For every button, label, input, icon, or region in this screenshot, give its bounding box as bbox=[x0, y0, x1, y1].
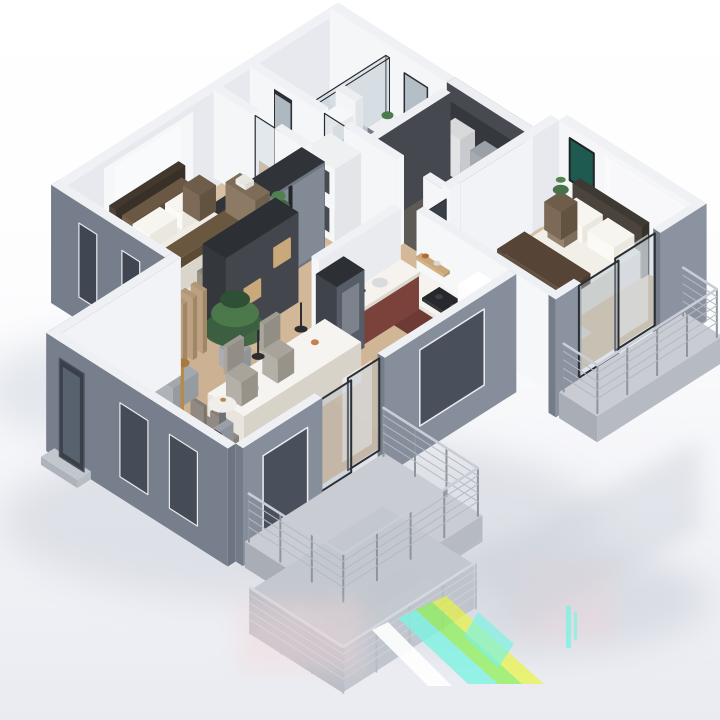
master-nightstand-plant-top bbox=[556, 177, 566, 183]
floorplan-viewport bbox=[0, 0, 720, 720]
living-slider-pane-2 bbox=[320, 380, 351, 492]
floorplan-canvas bbox=[0, 0, 720, 720]
bedroom1-exterior-window-1 bbox=[79, 223, 97, 308]
kitchen-sink bbox=[372, 278, 388, 288]
pendant-lamp-2 bbox=[252, 353, 265, 360]
entry-door-glass bbox=[63, 367, 80, 464]
floorplan-render bbox=[0, 3, 720, 693]
pendant-lamp-1 bbox=[295, 326, 308, 333]
master-nightstand-plant bbox=[553, 185, 569, 195]
vanity-plant bbox=[382, 111, 394, 119]
living-slider-pane-1 bbox=[348, 358, 379, 470]
glitch-pink-left bbox=[238, 600, 362, 672]
pendant-2-cord bbox=[257, 330, 259, 357]
island-vase bbox=[311, 339, 319, 345]
glitch-cyan-dash-1 bbox=[566, 606, 571, 648]
pendant-1-cord bbox=[300, 302, 302, 329]
kitchen-jar-2 bbox=[434, 261, 441, 266]
cooktop-burner-1 bbox=[435, 294, 443, 299]
master-nightstand bbox=[544, 191, 577, 240]
side-table-deco-gold bbox=[220, 398, 226, 402]
entry-plant-foliage-top bbox=[220, 290, 250, 308]
glitch-cyan-dash-2 bbox=[574, 612, 577, 640]
kitchen-jar-1 bbox=[422, 253, 429, 258]
